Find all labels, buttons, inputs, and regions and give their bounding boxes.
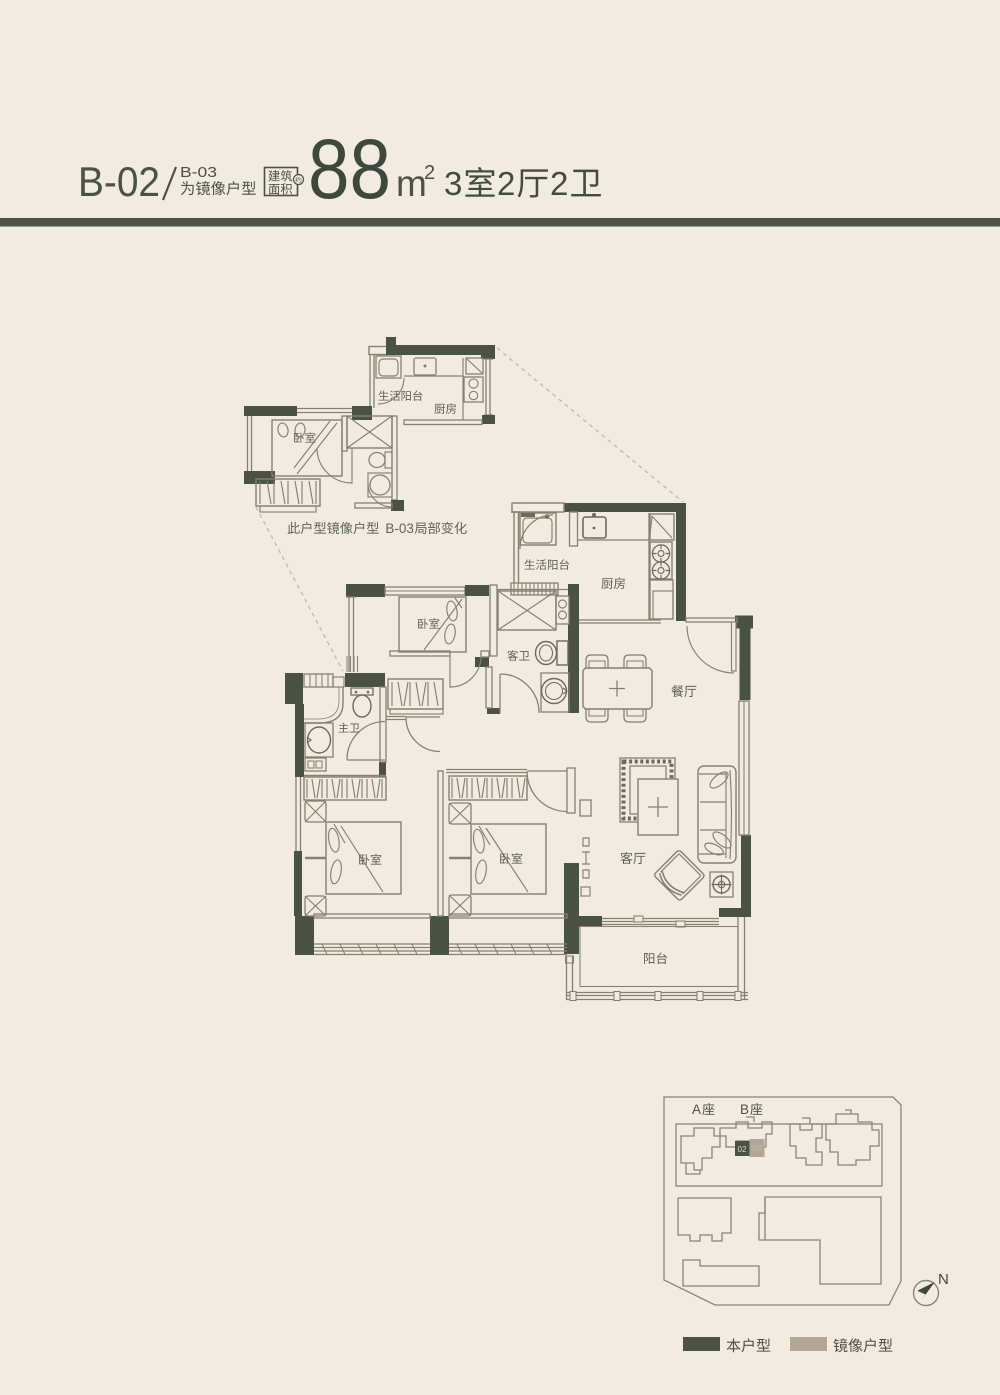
svg-text:3: 3	[444, 165, 462, 202]
svg-text:B-02: B-02	[78, 158, 160, 205]
svg-text:B: B	[740, 1102, 749, 1117]
svg-text:02: 02	[738, 1145, 747, 1154]
svg-text:03: 03	[753, 1144, 762, 1153]
svg-text:2: 2	[550, 165, 568, 202]
svg-text:m: m	[396, 163, 427, 204]
svg-text:B-03: B-03	[385, 521, 414, 536]
svg-text:N: N	[938, 1271, 949, 1288]
svg-text:A: A	[692, 1102, 701, 1117]
svg-text:2: 2	[424, 162, 435, 184]
svg-text:B-03: B-03	[180, 164, 217, 181]
svg-text:88: 88	[308, 122, 391, 216]
svg-text:2: 2	[497, 165, 515, 202]
